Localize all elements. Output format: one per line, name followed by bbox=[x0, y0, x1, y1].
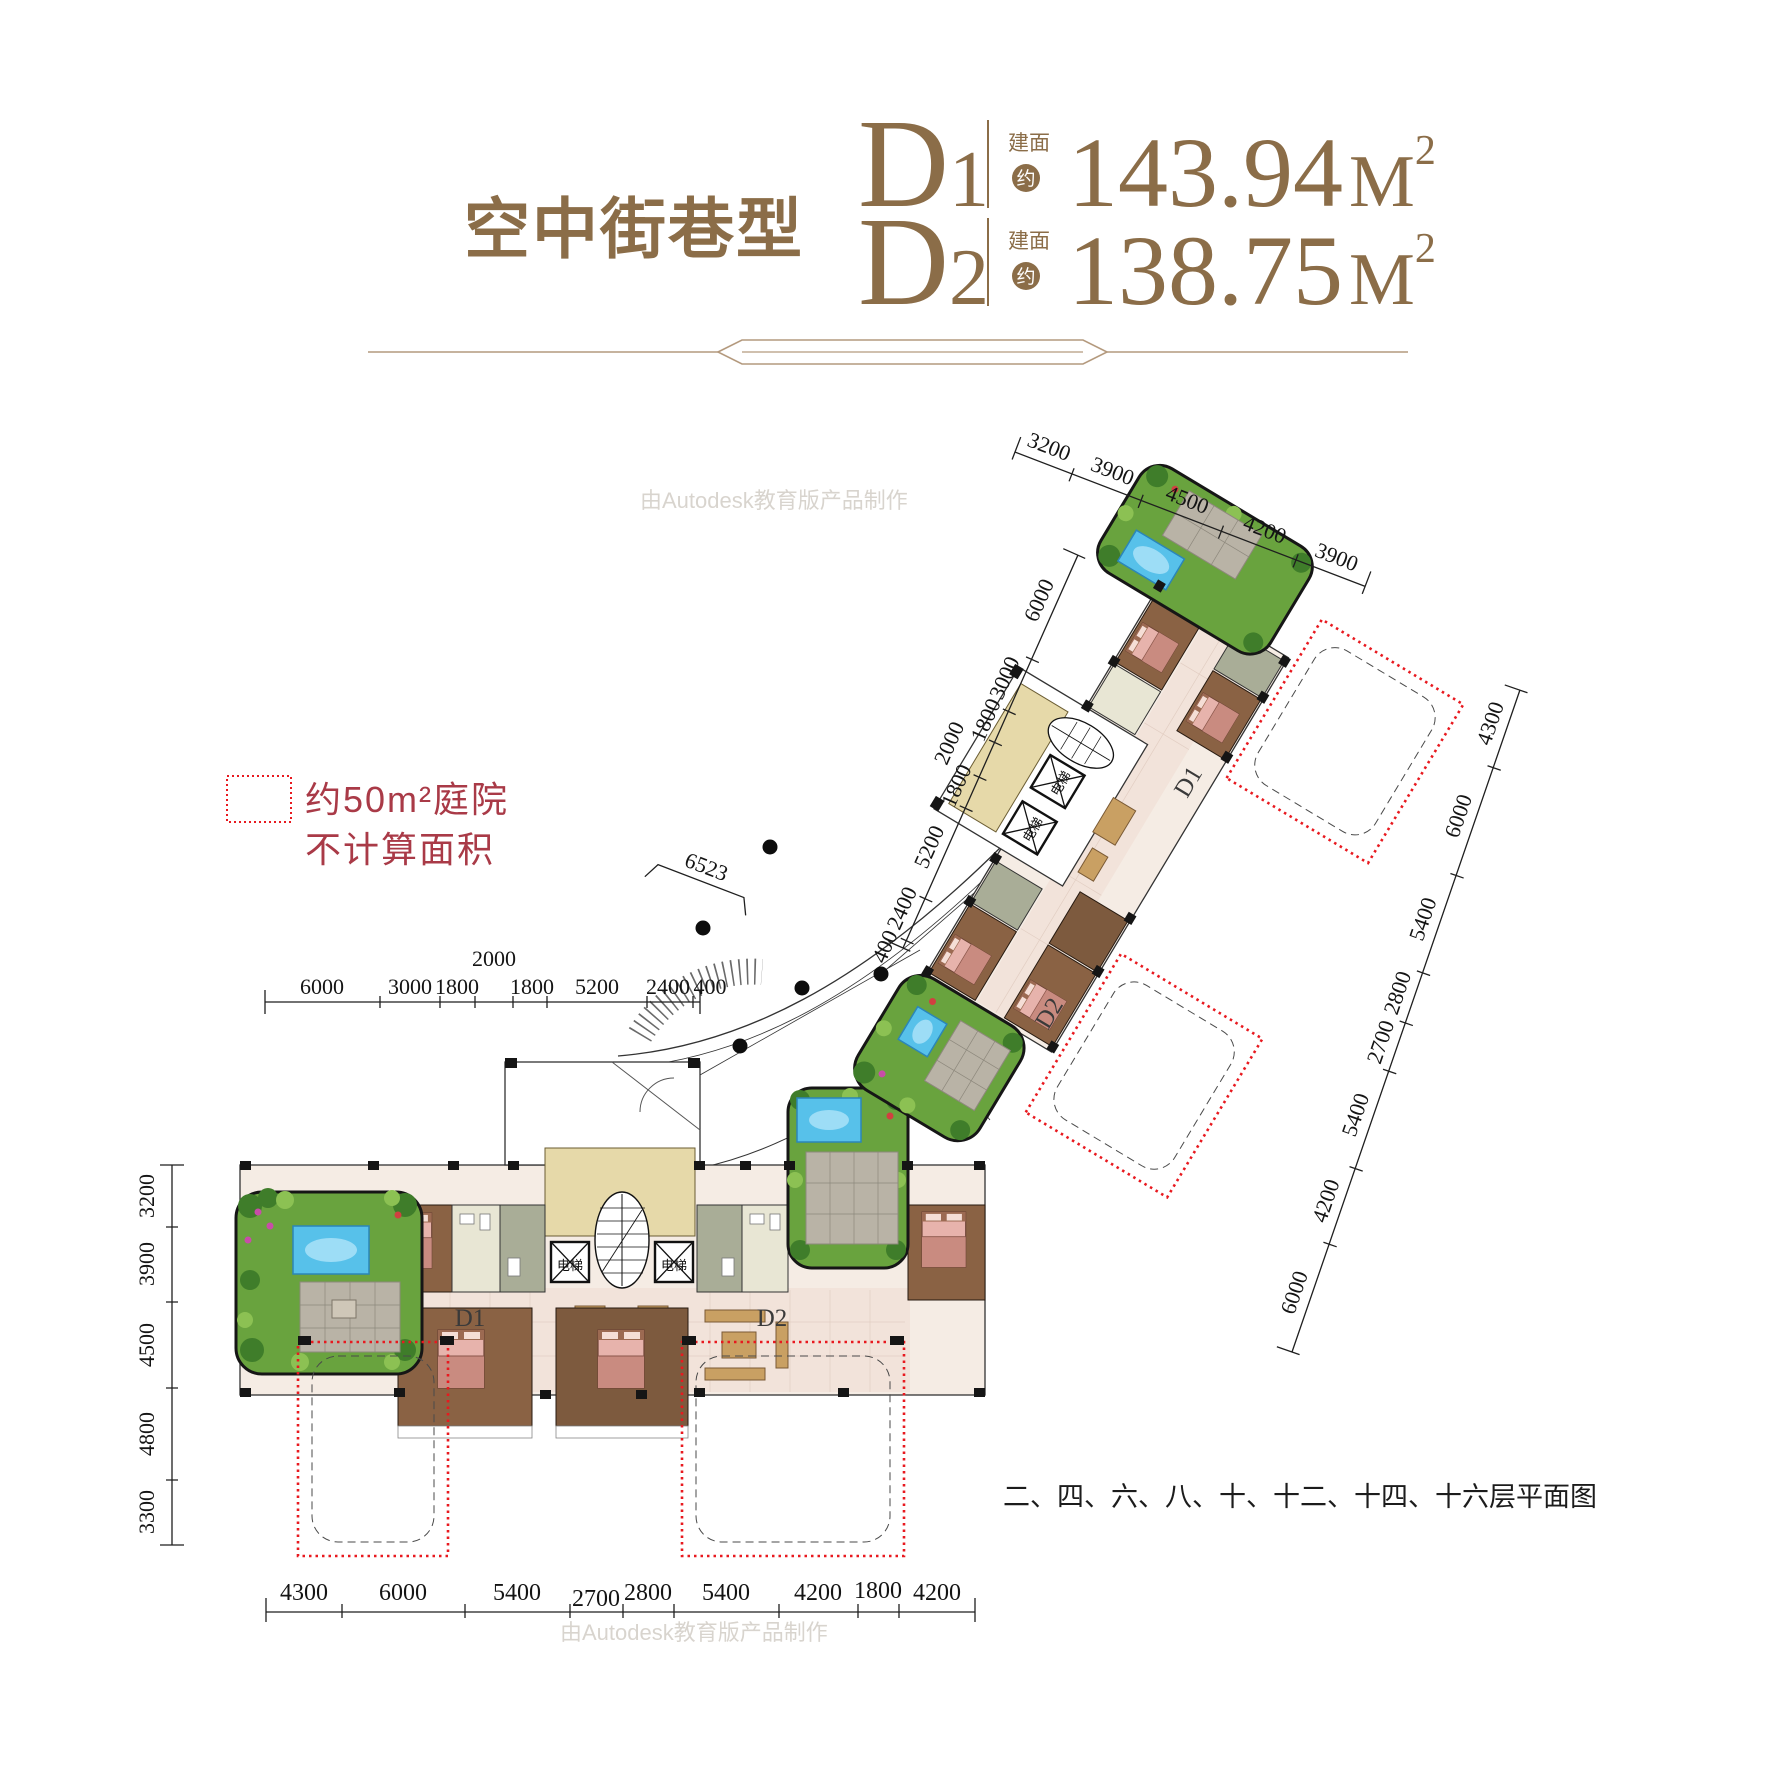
watermark-top: 由Autodesk教育版产品制作 bbox=[640, 488, 908, 513]
dim-label: 6000 bbox=[300, 974, 344, 999]
dim-label: 1800 bbox=[854, 1578, 902, 1604]
dim-label: 3200 bbox=[134, 1174, 159, 1218]
dim-label: 5400 bbox=[493, 1580, 541, 1606]
dim-label: 5400 bbox=[702, 1580, 750, 1606]
dim-label: 400 bbox=[694, 974, 727, 999]
dim-label: 4500 bbox=[134, 1323, 159, 1367]
elevator-label: 电梯 bbox=[557, 1258, 583, 1273]
dim-label: 2700 bbox=[572, 1586, 620, 1612]
area-prefix-1: 建面 bbox=[1008, 132, 1050, 155]
garden-left-right-end bbox=[787, 1088, 908, 1268]
dim-label: 3900 bbox=[134, 1242, 159, 1286]
plan-label-d2: D2 bbox=[757, 1305, 788, 1332]
watermark-bottom: 由Autodesk教育版产品制作 bbox=[560, 1620, 828, 1645]
dim-label: 2800 bbox=[624, 1580, 672, 1606]
dim-label: 3300 bbox=[134, 1490, 159, 1534]
floors-caption: 二、四、六、八、十、十二、十四、十六层平面图 bbox=[1003, 1482, 1597, 1512]
dim-label: 6000 bbox=[379, 1580, 427, 1606]
dim-label: 1800 bbox=[435, 974, 479, 999]
dim-label: 4300 bbox=[280, 1580, 328, 1606]
legend-line1: 约50m²庭院 bbox=[305, 779, 509, 820]
approx-text-2: 约 bbox=[1016, 266, 1035, 288]
dim-label: 1800 bbox=[510, 974, 554, 999]
dim-label: 3000 bbox=[388, 974, 432, 999]
dim-label: 4200 bbox=[794, 1580, 842, 1606]
page-title: 空中街巷型 bbox=[464, 192, 804, 266]
stairwell bbox=[595, 1192, 649, 1288]
floor-plan-figure: 空中街巷型 D1 建面 约 143.94M2 D2 建面 约 138.75M2 bbox=[0, 0, 1773, 1773]
floorplan-page: 空中街巷型 D1 建面 约 143.94M2 D2 建面 约 138.75M2 bbox=[0, 0, 1773, 1773]
legend-line2: 不计算面积 bbox=[305, 829, 495, 870]
dim-label: 4800 bbox=[134, 1412, 159, 1456]
dim-label: 4200 bbox=[913, 1580, 961, 1606]
dim-label: 2400 bbox=[646, 974, 690, 999]
area-prefix-2: 建面 bbox=[1008, 230, 1050, 253]
approx-text-1: 约 bbox=[1016, 168, 1035, 190]
garden-left bbox=[236, 1188, 422, 1374]
dim-label: 2000 bbox=[472, 946, 516, 971]
dim-label: 5200 bbox=[575, 974, 619, 999]
plan-label-d1: D1 bbox=[455, 1305, 486, 1332]
elevator-label: 电梯 bbox=[661, 1258, 687, 1273]
